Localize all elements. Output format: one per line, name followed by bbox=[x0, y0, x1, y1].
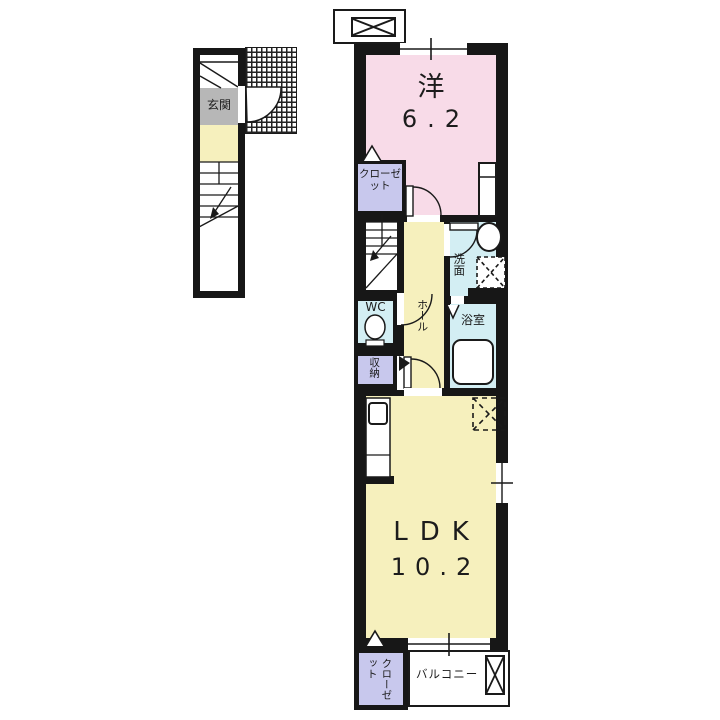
balcony-label: バルコニー bbox=[416, 668, 478, 681]
entrance-landing bbox=[200, 125, 238, 162]
bathroom-label: 浴室 bbox=[450, 314, 496, 328]
wall-stairs-south bbox=[354, 290, 404, 297]
wall-bath-north bbox=[444, 296, 496, 304]
wall-kitchen-stub bbox=[366, 476, 394, 484]
wall-hall-east bbox=[444, 215, 450, 396]
wall-ldk-north bbox=[366, 388, 496, 396]
stairs-unit-area bbox=[366, 215, 398, 293]
wc-label: WC bbox=[354, 301, 397, 315]
storage-label: 収納 bbox=[368, 357, 380, 385]
wall-hall-west bbox=[397, 214, 404, 396]
hall-label: ホール bbox=[415, 299, 428, 345]
ldk-size: 10.2 bbox=[366, 554, 496, 582]
left-block-wall-bottom bbox=[193, 291, 245, 298]
unit-wall-right bbox=[496, 43, 508, 650]
left-block-wall-top bbox=[193, 48, 245, 55]
washroom-label: 洗面 bbox=[452, 253, 465, 287]
western-room-size: 6.2 bbox=[366, 106, 496, 134]
floor-plan: 玄関 bbox=[0, 0, 720, 720]
wall-westroom-south bbox=[366, 215, 496, 222]
unit-wall-top bbox=[354, 43, 508, 55]
left-block-wall-right bbox=[238, 48, 245, 298]
roof-equipment-box-inner bbox=[351, 17, 396, 37]
western-room-name: 洋 bbox=[366, 72, 496, 103]
stairs-left-area bbox=[200, 162, 238, 291]
entrance-label: 玄関 bbox=[200, 99, 238, 113]
closet-upper-label: クローゼット bbox=[358, 168, 402, 192]
stairwell-upper-void bbox=[200, 55, 238, 88]
ldk-name: LDK bbox=[366, 518, 496, 548]
closet-lower-label: クローゼット bbox=[364, 658, 393, 700]
left-block-wall-left bbox=[193, 48, 200, 298]
balcony-equipment-box bbox=[485, 655, 505, 695]
entrance-porch-hatch bbox=[245, 47, 297, 134]
